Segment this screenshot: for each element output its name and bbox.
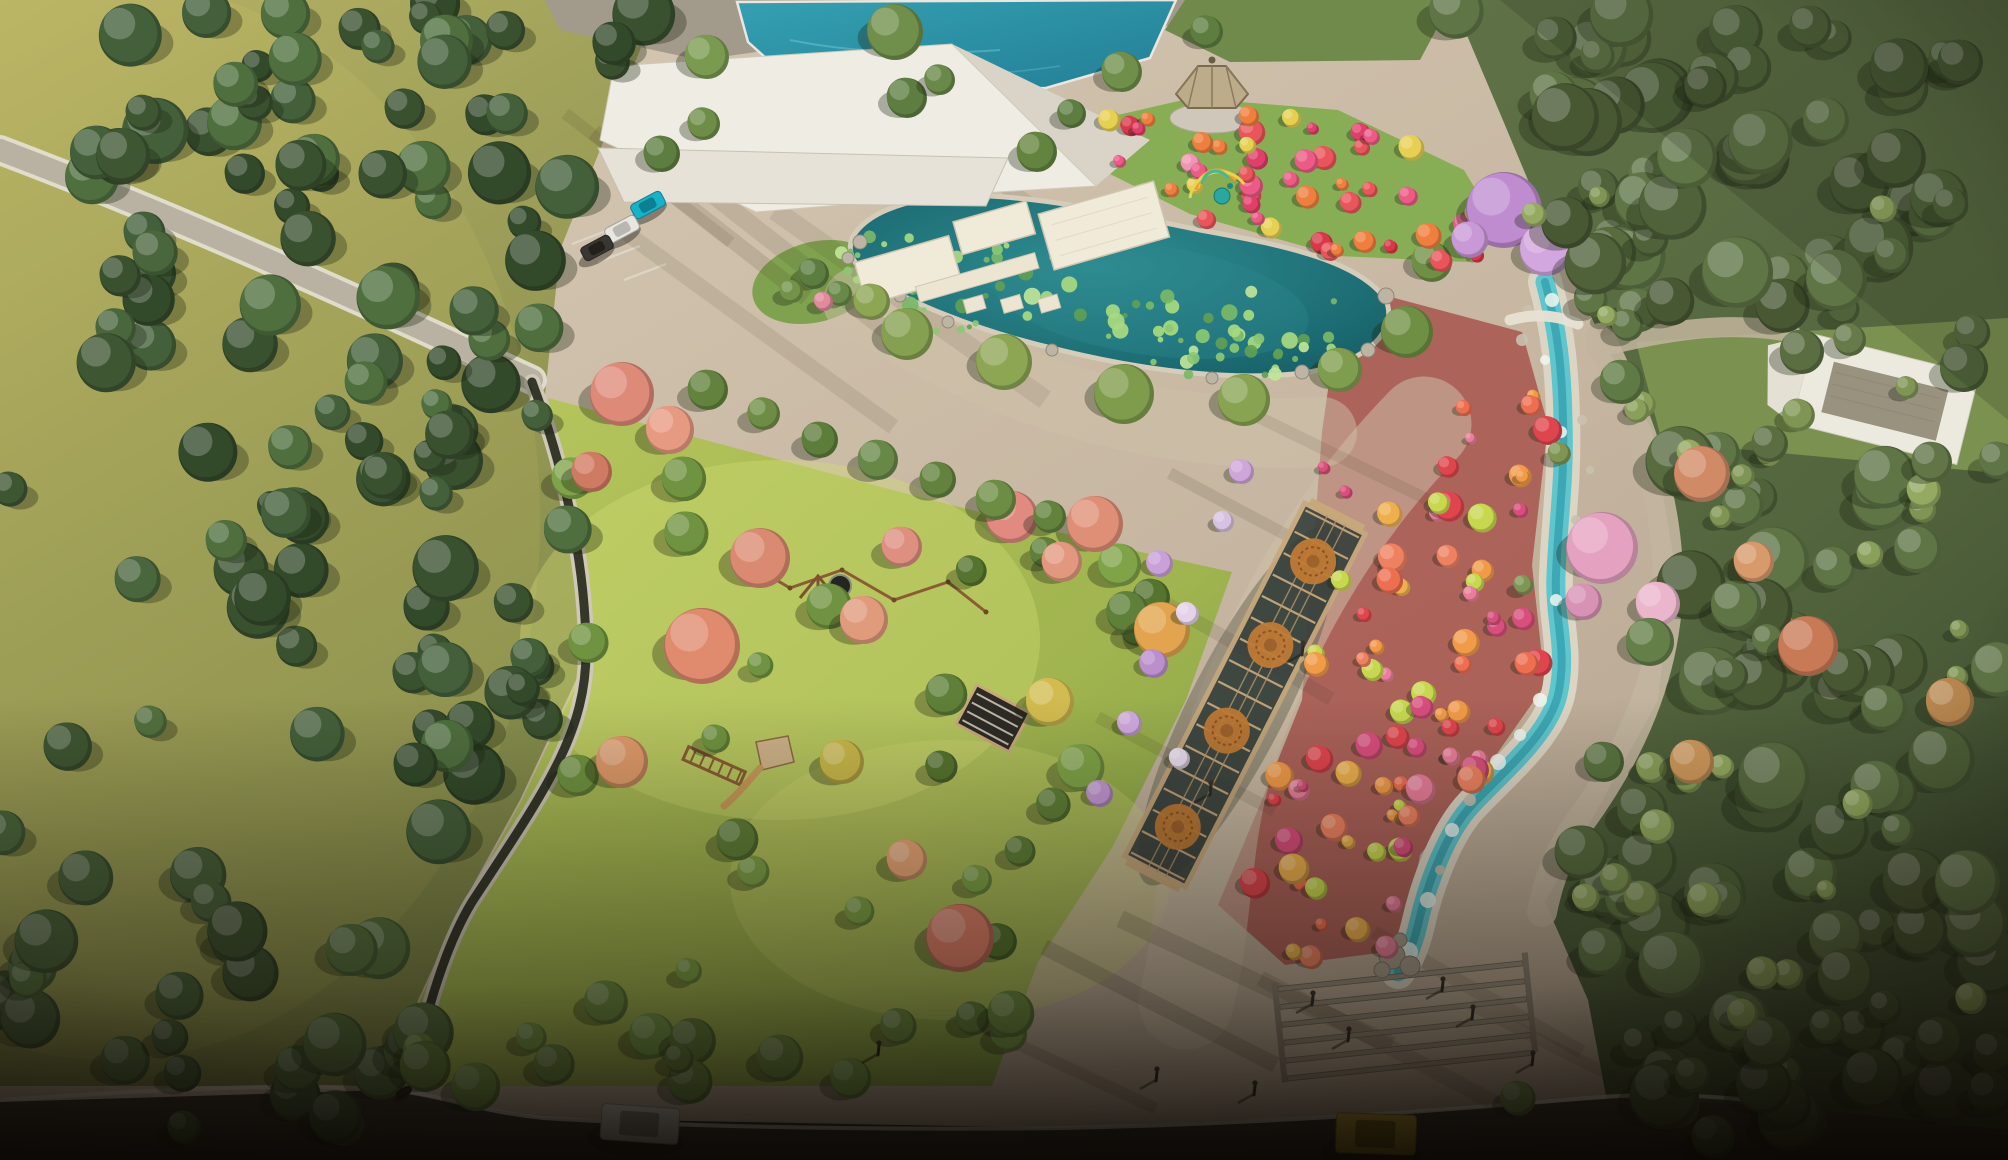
park-aerial-rendering bbox=[0, 0, 2008, 1160]
atmosphere bbox=[0, 0, 2008, 1160]
bottom-vignette bbox=[0, 0, 2008, 1160]
park-rendering-svg bbox=[0, 0, 2008, 1160]
